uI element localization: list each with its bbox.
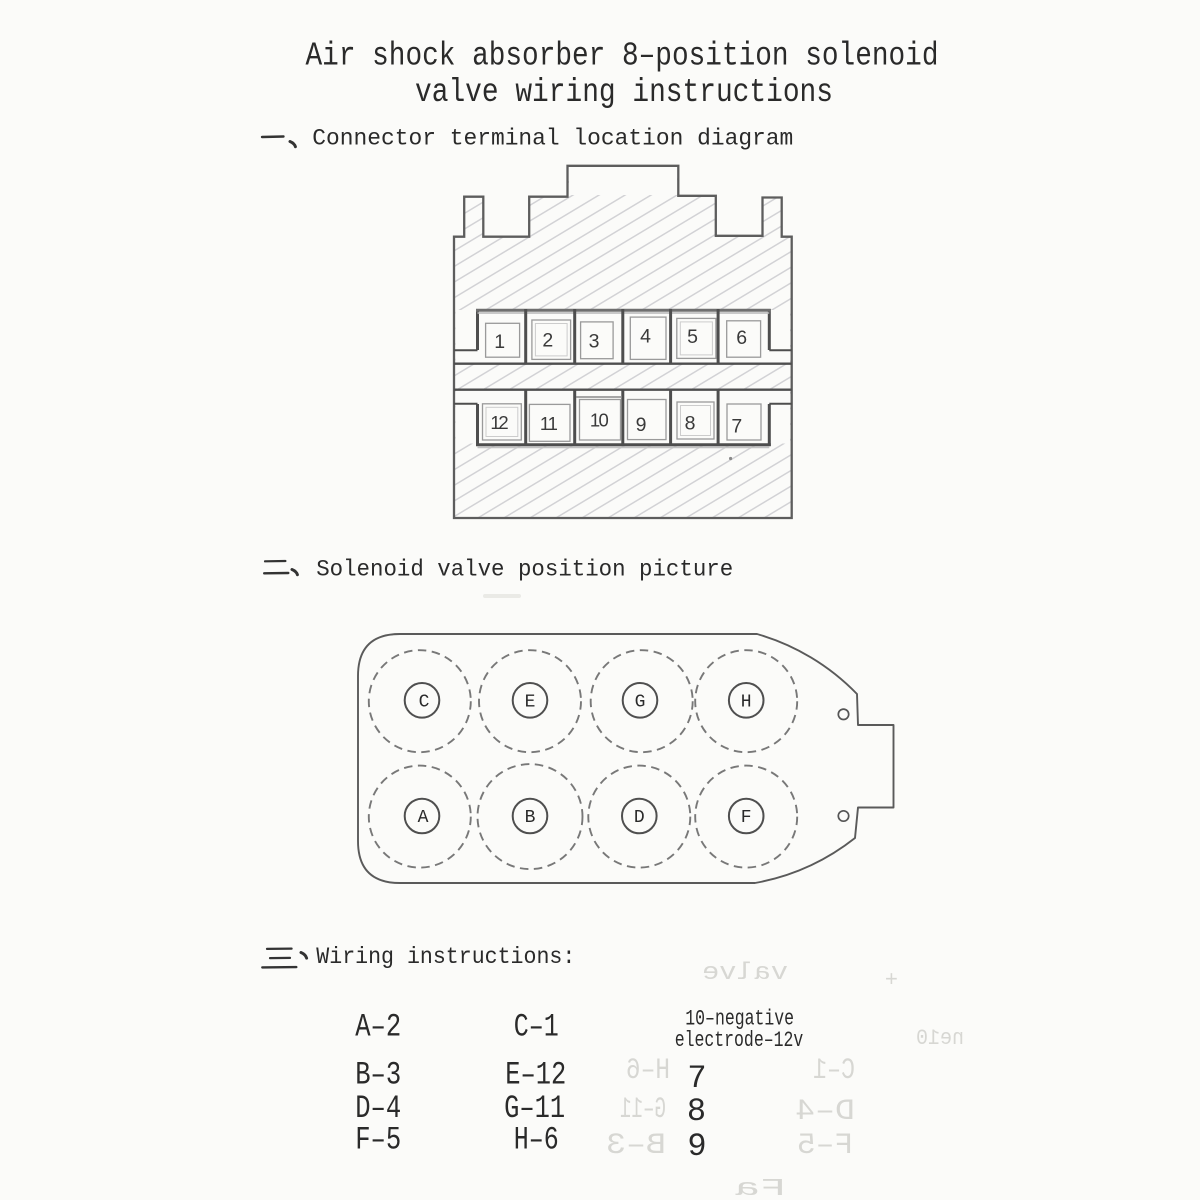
svg-text:9: 9 bbox=[636, 414, 647, 436]
svg-text:Air shock absorber 8–position: Air shock absorber 8–position solenoid bbox=[306, 38, 939, 75]
svg-text:F–5: F–5 bbox=[355, 1122, 401, 1159]
svg-text:0: 0 bbox=[598, 409, 608, 430]
svg-text:Wiring instructions:: Wiring instructions: bbox=[316, 944, 575, 971]
svg-text:2: 2 bbox=[542, 329, 553, 351]
svg-text:H–6: H–6 bbox=[626, 1054, 670, 1088]
svg-text:Connector terminal location di: Connector terminal location diagram bbox=[312, 126, 793, 153]
svg-text:C–1: C–1 bbox=[514, 1009, 559, 1046]
svg-text:+: + bbox=[885, 968, 898, 993]
svg-text:A: A bbox=[418, 808, 429, 828]
svg-text:H–6: H–6 bbox=[514, 1122, 559, 1159]
svg-text:H: H bbox=[741, 692, 752, 712]
svg-text:7: 7 bbox=[687, 1060, 706, 1097]
svg-text:C–1: C–1 bbox=[813, 1054, 855, 1088]
svg-text:E: E bbox=[525, 692, 536, 712]
svg-text:F: F bbox=[741, 808, 752, 828]
svg-text:7: 7 bbox=[731, 415, 742, 437]
svg-text:G: G bbox=[635, 692, 646, 712]
svg-text:5: 5 bbox=[687, 326, 698, 348]
svg-text:8: 8 bbox=[685, 412, 696, 434]
svg-text:Solenoid valve position pictur: Solenoid valve position picture bbox=[316, 557, 733, 584]
svg-text:C: C bbox=[419, 692, 430, 712]
svg-text:Fa: Fa bbox=[734, 1176, 786, 1200]
svg-text:9: 9 bbox=[687, 1128, 706, 1165]
svg-text:G–11: G–11 bbox=[620, 1093, 666, 1127]
svg-text:E–12: E–12 bbox=[505, 1056, 566, 1093]
svg-text:ne10: ne10 bbox=[916, 1026, 964, 1051]
svg-text:3: 3 bbox=[589, 331, 600, 353]
svg-text:B–3: B–3 bbox=[355, 1056, 401, 1093]
svg-text:8: 8 bbox=[687, 1093, 706, 1130]
svg-text:4: 4 bbox=[640, 326, 651, 348]
svg-text:D: D bbox=[634, 808, 645, 828]
svg-text:A–2: A–2 bbox=[355, 1009, 401, 1046]
svg-text:2: 2 bbox=[498, 412, 508, 433]
svg-text:electrode–12v: electrode–12v bbox=[675, 1028, 804, 1053]
svg-text:D–4: D–4 bbox=[795, 1095, 855, 1129]
svg-text:B: B bbox=[525, 808, 536, 828]
svg-text:1: 1 bbox=[548, 413, 558, 434]
svg-text:valve wiring instructions: valve wiring instructions bbox=[415, 74, 833, 111]
svg-text:valve: valve bbox=[702, 960, 788, 987]
svg-text:F–5: F–5 bbox=[797, 1129, 853, 1163]
svg-text:B–3: B–3 bbox=[606, 1129, 666, 1163]
svg-text:1: 1 bbox=[494, 331, 505, 353]
svg-text:6: 6 bbox=[736, 327, 747, 349]
